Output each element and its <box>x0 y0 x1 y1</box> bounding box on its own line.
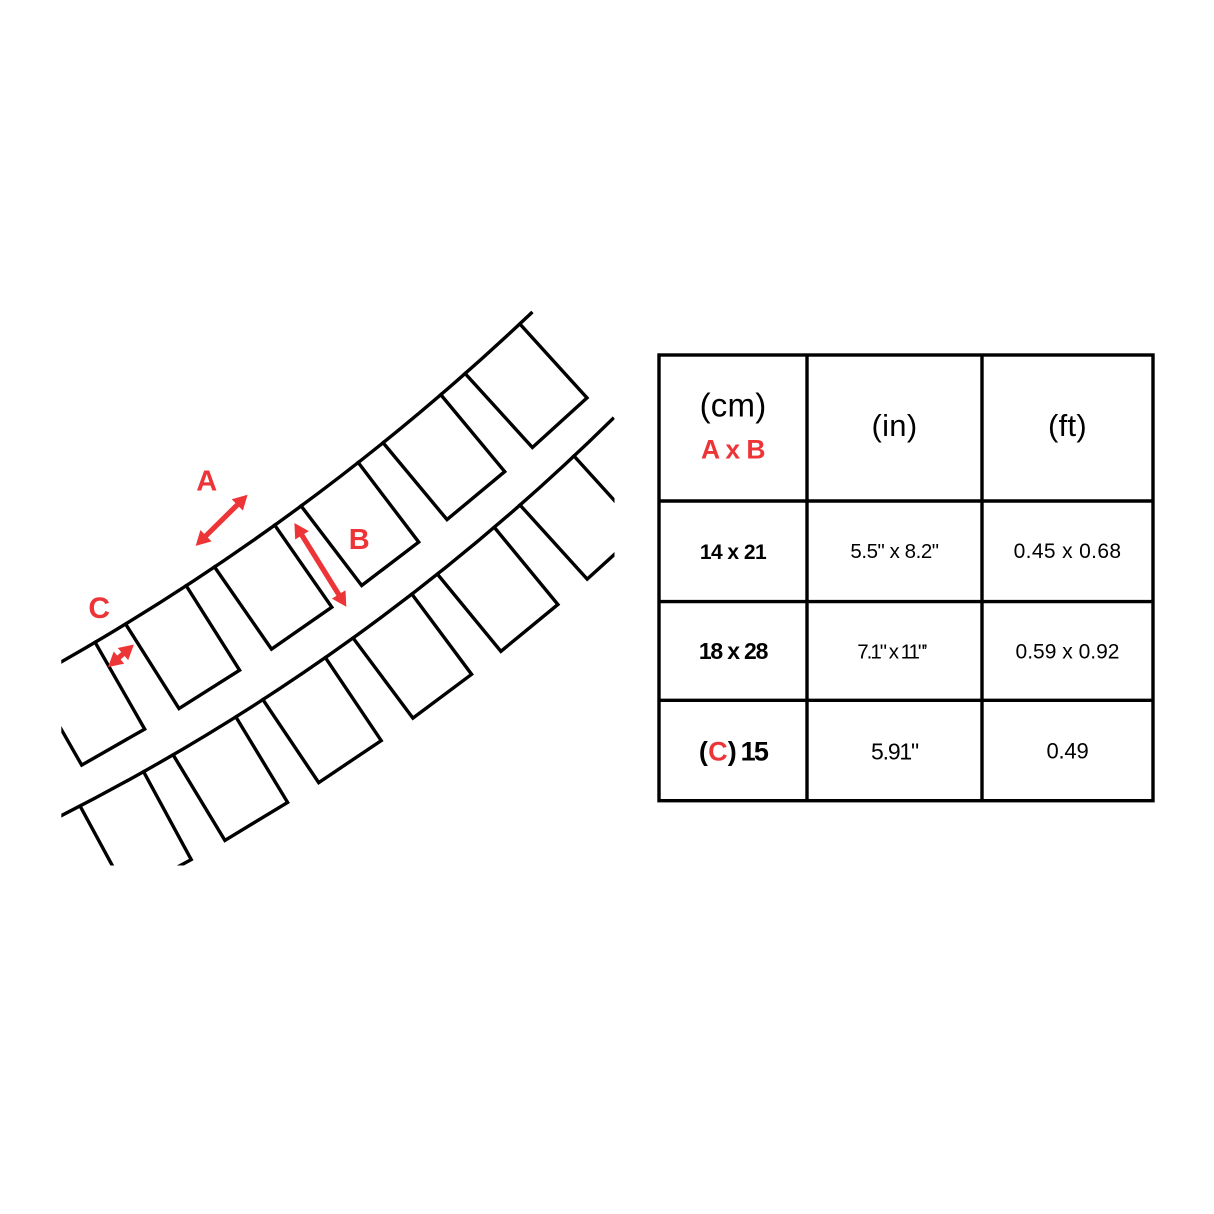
svg-text:5.91": 5.91" <box>871 739 919 765</box>
svg-text:(ft): (ft) <box>1048 408 1087 443</box>
svg-text:(in): (in) <box>872 408 918 443</box>
svg-text:(cm): (cm) <box>700 387 767 424</box>
svg-text:0.45 x 0.68: 0.45 x 0.68 <box>1014 540 1122 563</box>
svg-text:18 x 28: 18 x 28 <box>699 638 769 664</box>
svg-text:5.5" x 8.2": 5.5" x 8.2" <box>850 540 938 563</box>
svg-text:C: C <box>88 592 110 625</box>
svg-text:B: B <box>349 524 370 556</box>
svg-text:(C) 15: (C) 15 <box>699 737 769 767</box>
svg-text:14 x 21: 14 x 21 <box>700 541 767 564</box>
svg-text:7.1" x 11"’: 7.1" x 11"’ <box>857 640 927 663</box>
svg-text:0.59 x 0.92: 0.59 x 0.92 <box>1016 640 1120 663</box>
svg-text:A x B: A x B <box>701 434 765 464</box>
svg-text:0.49: 0.49 <box>1046 739 1088 764</box>
svg-text:A: A <box>196 465 217 497</box>
